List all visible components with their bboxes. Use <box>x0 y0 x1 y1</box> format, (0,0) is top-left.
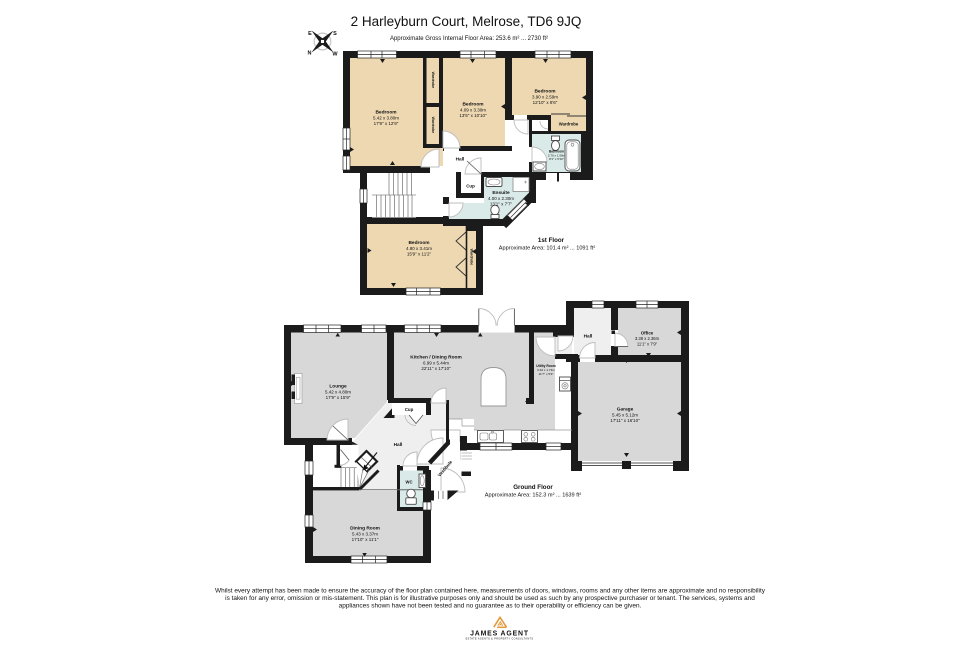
svg-text:11'7" x 5'9": 11'7" x 5'9" <box>538 372 553 376</box>
svg-text:ESTATE AGENTS & PROPERTY CONSU: ESTATE AGENTS & PROPERTY CONSULTANTS <box>466 637 534 640</box>
svg-text:8'1" x 5'10": 8'1" x 5'10" <box>549 157 564 161</box>
svg-text:6.99 x 5.44m: 6.99 x 5.44m <box>423 361 449 366</box>
svg-text:13'5" x 10'10": 13'5" x 10'10" <box>459 113 487 118</box>
svg-text:5.45 x 5.12m: 5.45 x 5.12m <box>612 413 638 418</box>
svg-text:4.00 x 2.30m: 4.00 x 2.30m <box>488 196 514 201</box>
svg-text:Approximate Area: 101.4 m² ...: Approximate Area: 101.4 m² ... 1091 ft² <box>499 246 596 252</box>
svg-text:WC: WC <box>406 480 413 485</box>
svg-text:S: S <box>333 31 337 37</box>
svg-text:4.80 x 3.41m: 4.80 x 3.41m <box>406 246 432 251</box>
svg-text:Hall: Hall <box>456 157 465 163</box>
svg-text:3.90 x 2.59m: 3.90 x 2.59m <box>532 95 558 100</box>
svg-text:5.43 x 3.37m: 5.43 x 3.37m <box>352 532 378 537</box>
svg-text:appliances shown have not been: appliances shown have not been tested an… <box>339 603 642 610</box>
svg-text:12'10" x 8'6": 12'10" x 8'6" <box>533 100 558 105</box>
svg-text:Ground Floor: Ground Floor <box>513 484 553 491</box>
svg-text:Wardrobe: Wardrobe <box>559 122 579 127</box>
svg-text:17'11" x 16'10": 17'11" x 16'10" <box>610 418 640 423</box>
svg-text:5.42 x 4.80m: 5.42 x 4.80m <box>325 390 351 395</box>
svg-text:17'9" x 15'9": 17'9" x 15'9" <box>326 395 351 400</box>
svg-text:Approximate Gross Internal Flo: Approximate Gross Internal Floor Area: 2… <box>390 36 548 42</box>
svg-text:17'10" x 11'1": 17'10" x 11'1" <box>352 537 379 542</box>
svg-text:Approximate Area: 152.3 m² ...: Approximate Area: 152.3 m² ... 1639 ft² <box>485 493 582 499</box>
svg-text:is taken for any error, omissi: is taken for any error, omission or mis-… <box>225 595 755 602</box>
svg-text:3.38 x 2.36m: 3.38 x 2.36m <box>635 336 660 341</box>
svg-text:Hall: Hall <box>584 334 593 340</box>
svg-text:1st Floor: 1st Floor <box>538 237 565 244</box>
svg-text:Hall: Hall <box>394 442 403 448</box>
svg-text:E: E <box>308 31 312 37</box>
svg-text:4.09 x 3.30m: 4.09 x 3.30m <box>460 108 486 113</box>
svg-text:5.42 x 3.80m: 5.42 x 3.80m <box>373 116 399 121</box>
svg-text:N: N <box>308 51 312 57</box>
svg-text:11'1" x 7'9": 11'1" x 7'9" <box>637 341 658 346</box>
svg-text:13'1" x 7'7": 13'1" x 7'7" <box>490 202 513 207</box>
svg-text:Cup: Cup <box>466 184 475 189</box>
svg-text:22'11" x 17'10": 22'11" x 17'10" <box>421 366 451 371</box>
svg-text:Office: Office <box>641 331 654 336</box>
svg-text:2 Harleyburn Court, Melrose, T: 2 Harleyburn Court, Melrose, TD6 9JQ <box>351 14 582 29</box>
svg-text:15'9" x 11'2": 15'9" x 11'2" <box>407 252 432 257</box>
svg-text:Cup: Cup <box>405 407 414 412</box>
svg-text:17'9" x 12'9": 17'9" x 12'9" <box>374 121 399 126</box>
svg-text:W: W <box>332 52 338 58</box>
svg-text:Wardrobe: Wardrobe <box>431 117 435 134</box>
svg-text:Wardrobe: Wardrobe <box>431 72 435 89</box>
svg-text:Whilst every attempt has been: Whilst every attempt has been made to en… <box>215 588 766 595</box>
